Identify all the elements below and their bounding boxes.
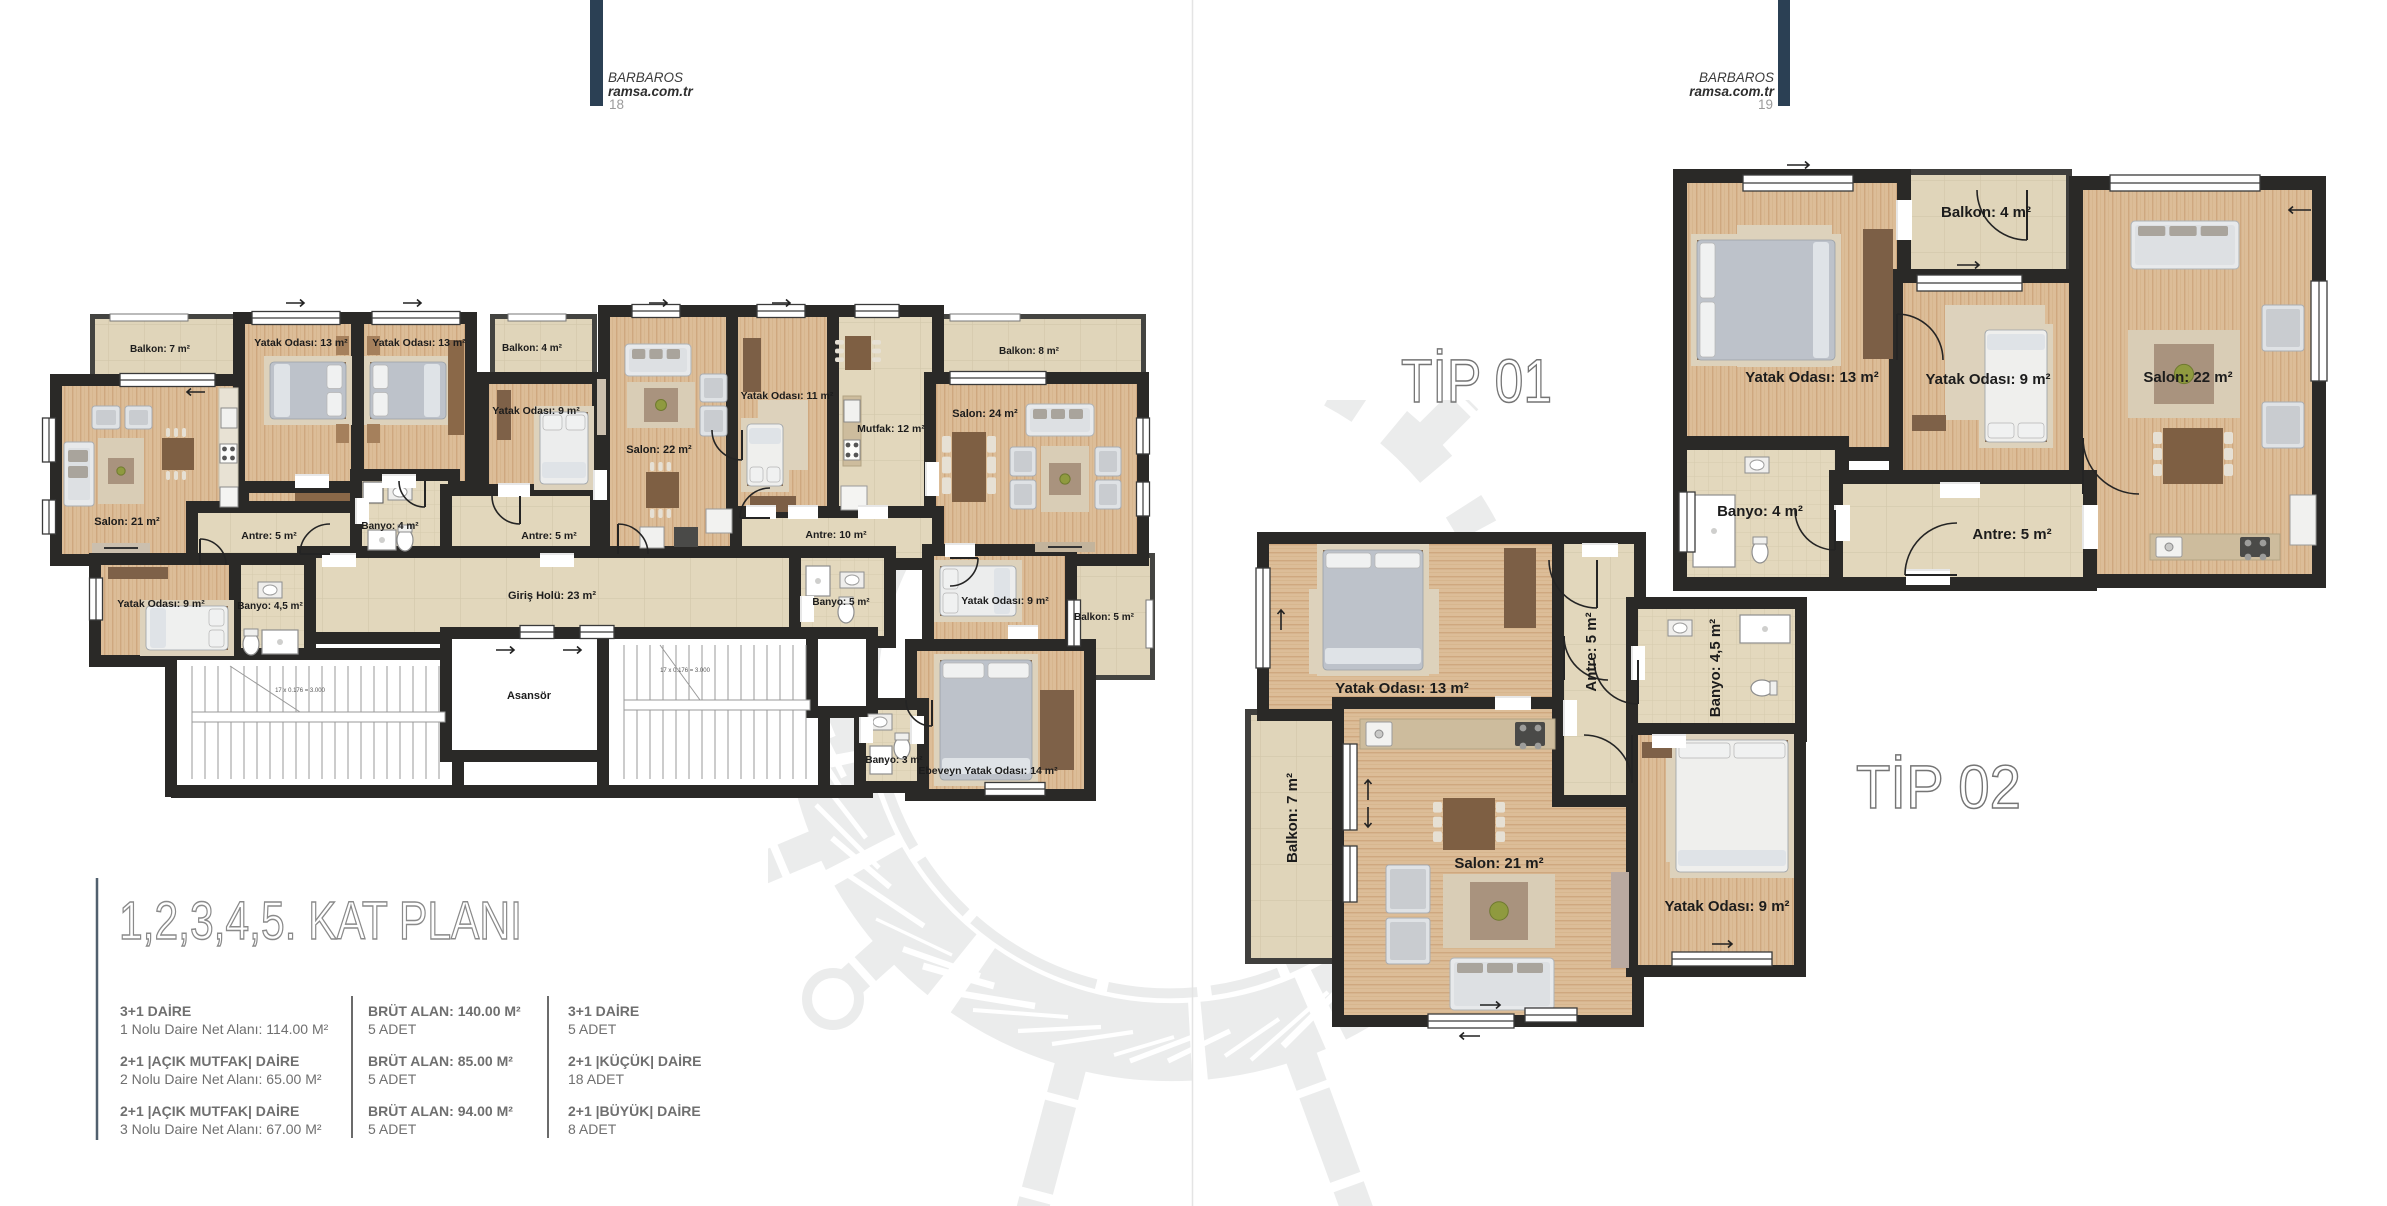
svg-text:BRÜT ALAN: 140.00 M²: BRÜT ALAN: 140.00 M² (368, 1003, 521, 1019)
svg-text:BRÜT ALAN: 94.00 M²: BRÜT ALAN: 94.00 M² (368, 1103, 513, 1119)
svg-text:2 Nolu Daire Net Alanı: 65.00: 2 Nolu Daire Net Alanı: 65.00 M² (120, 1071, 322, 1087)
svg-text:Salon: 21 m²: Salon: 21 m² (94, 516, 160, 528)
svg-text:Balkon: 4 m²: Balkon: 4 m² (502, 343, 563, 354)
svg-text:Giriş Holü: 23 m²: Giriş Holü: 23 m² (508, 590, 596, 602)
svg-text:Balkon: 7 m²: Balkon: 7 m² (130, 344, 191, 355)
svg-text:Asansör: Asansör (507, 690, 552, 702)
svg-text:Yatak Odası: 9 m²: Yatak Odası: 9 m² (1664, 898, 1789, 915)
svg-text:5 ADET: 5 ADET (368, 1121, 417, 1137)
svg-text:Banyo: 4 m²: Banyo: 4 m² (361, 521, 419, 532)
svg-text:3+1 DAİRE: 3+1 DAİRE (120, 1003, 191, 1019)
svg-text:Banyo: 5 m²: Banyo: 5 m² (812, 597, 870, 608)
svg-text:3 Nolu Daire Net Alanı: 67.00: 3 Nolu Daire Net Alanı: 67.00 M² (120, 1121, 322, 1137)
svg-text:17 x 0.176 = 3.000: 17 x 0.176 = 3.000 (660, 668, 711, 674)
svg-text:Yatak Odası: 9 m²: Yatak Odası: 9 m² (1925, 371, 2050, 388)
svg-text:Yatak Odası: 13 m²: Yatak Odası: 13 m² (372, 337, 466, 349)
svg-text:18 ADET: 18 ADET (568, 1071, 624, 1087)
svg-text:2+1 |AÇIK MUTFAK| DAİRE: 2+1 |AÇIK MUTFAK| DAİRE (120, 1103, 299, 1119)
svg-text:Banyo: 3 m²: Banyo: 3 m² (865, 755, 923, 766)
svg-text:1 Nolu Daire Net Alanı: 114.00: 1 Nolu Daire Net Alanı: 114.00 M² (120, 1021, 329, 1037)
svg-text:Antre: 5 m²: Antre: 5 m² (241, 530, 297, 542)
svg-text:Banyo: 4,5 m²: Banyo: 4,5 m² (237, 601, 303, 612)
svg-text:19: 19 (1758, 97, 1773, 112)
svg-text:TİP 02: TİP 02 (1856, 753, 2021, 821)
svg-text:Salon: 21 m²: Salon: 21 m² (1454, 855, 1543, 872)
svg-text:Balkon: 5 m²: Balkon: 5 m² (1074, 612, 1135, 623)
svg-text:1,2,3,4,5. KAT PLANI: 1,2,3,4,5. KAT PLANI (119, 891, 522, 951)
svg-text:Balkon: 8 m²: Balkon: 8 m² (999, 346, 1060, 357)
svg-text:2+1 |KÜÇÜK| DAİRE: 2+1 |KÜÇÜK| DAİRE (568, 1053, 701, 1069)
svg-text:Ebeveyn Yatak Odası: 14 m²: Ebeveyn Yatak Odası: 14 m² (918, 765, 1058, 777)
svg-text:8 ADET: 8 ADET (568, 1121, 617, 1137)
svg-text:Yatak Odası: 13 m²: Yatak Odası: 13 m² (1335, 680, 1468, 697)
svg-text:Yatak Odası: 9 m²: Yatak Odası: 9 m² (492, 405, 580, 417)
svg-text:TİP 01: TİP 01 (1401, 347, 1552, 415)
svg-text:Antre: 10 m²: Antre: 10 m² (805, 529, 867, 541)
svg-text:Banyo: 4,5 m²: Banyo: 4,5 m² (1707, 619, 1724, 717)
svg-text:Yatak Odası: 9 m²: Yatak Odası: 9 m² (117, 598, 205, 610)
svg-text:Banyo: 4 m²: Banyo: 4 m² (1717, 503, 1803, 520)
svg-text:BARBAROS: BARBAROS (1699, 70, 1774, 85)
svg-text:Mutfak: 12 m²: Mutfak: 12 m² (857, 423, 925, 435)
svg-text:BRÜT ALAN: 85.00 M²: BRÜT ALAN: 85.00 M² (368, 1053, 513, 1069)
svg-text:Yatak Odası: 13 m²: Yatak Odası: 13 m² (1745, 369, 1878, 386)
svg-text:Balkon: 4 m²: Balkon: 4 m² (1941, 204, 2031, 221)
svg-text:Salon: 22 m²: Salon: 22 m² (626, 444, 692, 456)
svg-text:Yatak Odası: 9 m²: Yatak Odası: 9 m² (961, 595, 1049, 607)
svg-text:17 x 0.176 = 3.000: 17 x 0.176 = 3.000 (275, 688, 326, 694)
svg-text:Antre: 5 m²: Antre: 5 m² (1972, 526, 2051, 543)
svg-text:Yatak Odası: 11 m²: Yatak Odası: 11 m² (741, 390, 834, 402)
svg-text:Antre: 5 m²: Antre: 5 m² (1583, 612, 1600, 691)
svg-text:5 ADET: 5 ADET (568, 1021, 617, 1037)
svg-text:2+1 |BÜYÜK| DAİRE: 2+1 |BÜYÜK| DAİRE (568, 1103, 701, 1119)
svg-text:3+1 DAİRE: 3+1 DAİRE (568, 1003, 639, 1019)
svg-text:Balkon: 7 m²: Balkon: 7 m² (1284, 773, 1301, 863)
svg-text:Salon: 22 m²: Salon: 22 m² (2143, 369, 2232, 386)
svg-text:Salon: 24 m²: Salon: 24 m² (952, 408, 1018, 420)
svg-text:Antre: 5 m²: Antre: 5 m² (521, 530, 577, 542)
svg-text:2+1 |AÇIK MUTFAK| DAİRE: 2+1 |AÇIK MUTFAK| DAİRE (120, 1053, 299, 1069)
svg-text:5 ADET: 5 ADET (368, 1071, 417, 1087)
svg-text:18: 18 (609, 97, 624, 112)
svg-text:BARBAROS: BARBAROS (608, 70, 683, 85)
svg-text:5 ADET: 5 ADET (368, 1021, 417, 1037)
svg-text:Yatak Odası: 13 m²: Yatak Odası: 13 m² (254, 337, 348, 349)
